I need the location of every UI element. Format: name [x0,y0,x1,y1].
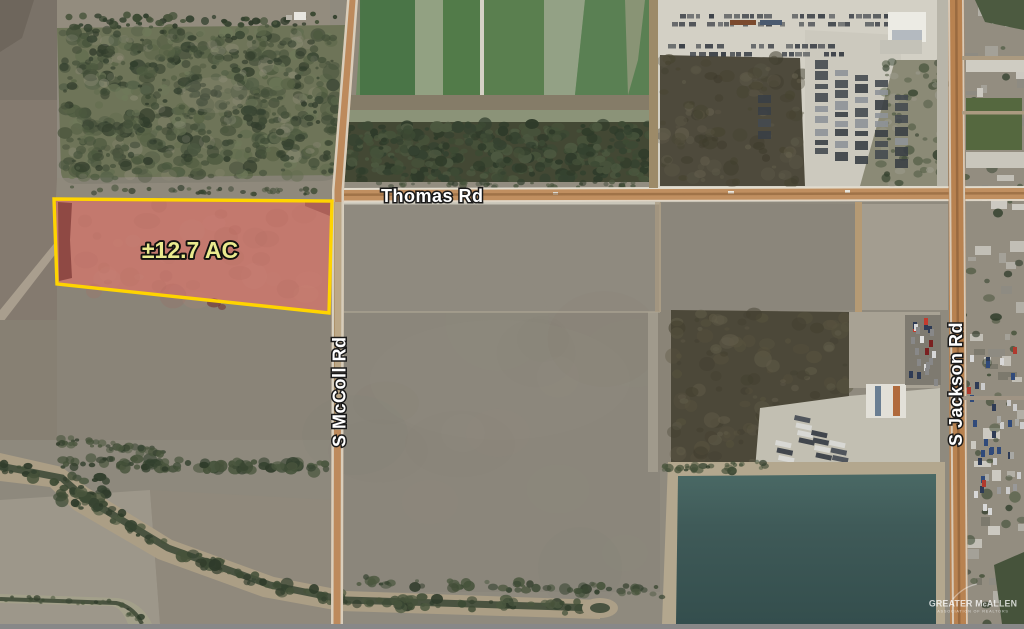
svg-text:S McColl Rd: S McColl Rd [330,336,350,447]
svg-text:S Jackson Rd: S Jackson Rd [946,322,966,446]
svg-text:±12.7 AC: ±12.7 AC [142,237,238,263]
svg-text:Thomas Rd: Thomas Rd [381,186,484,206]
svg-text:ASSOCIATION OF REALTORS: ASSOCIATION OF REALTORS [937,610,1009,614]
svg-text:GREATER McALLEN: GREATER McALLEN [929,599,1017,609]
